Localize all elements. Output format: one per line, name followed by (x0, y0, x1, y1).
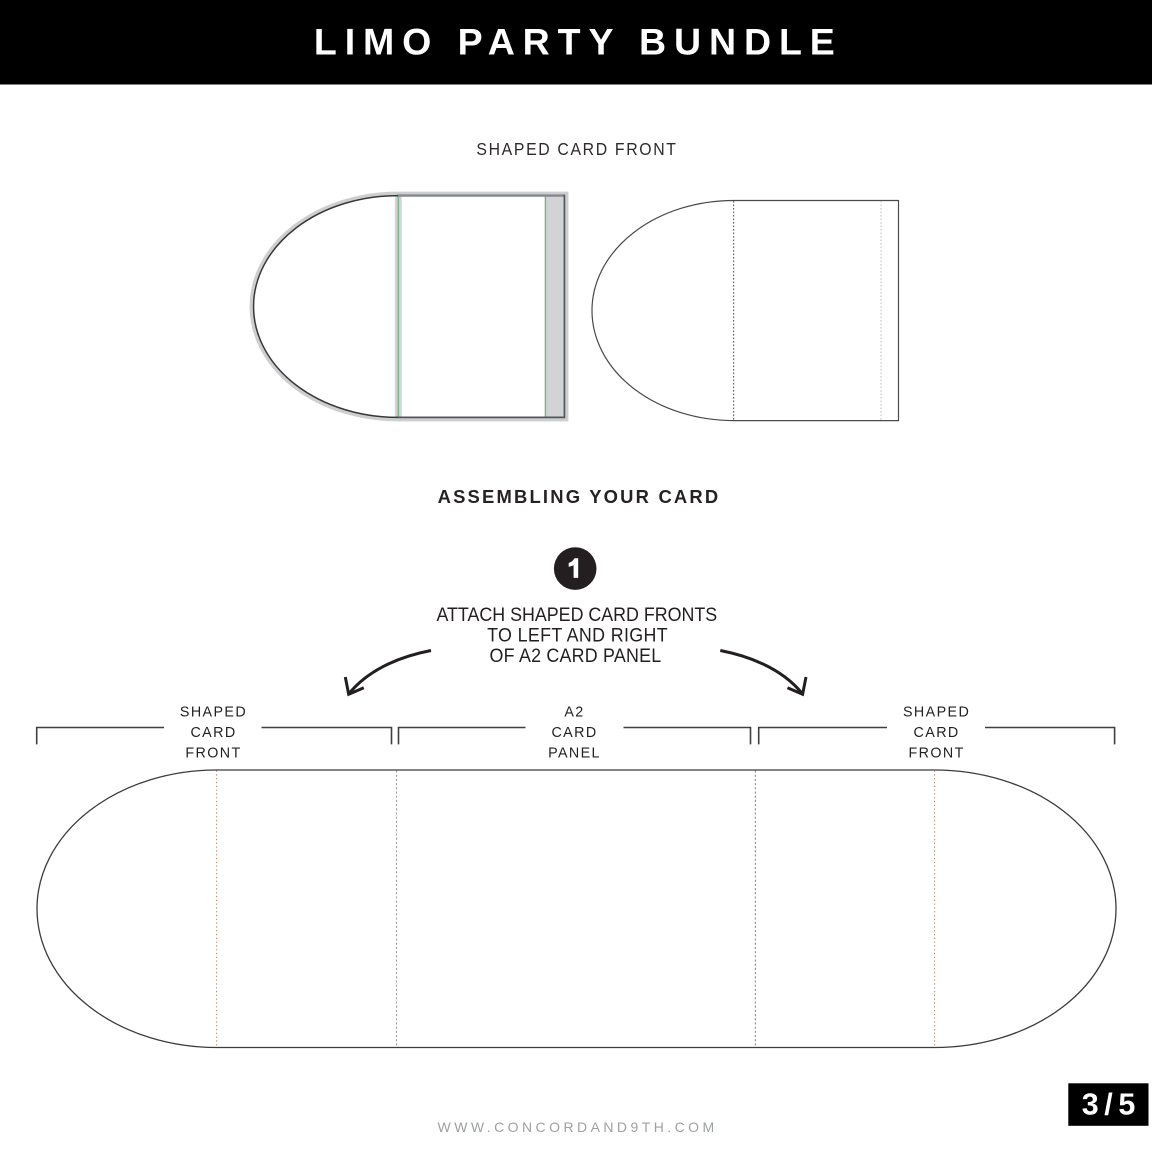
svg-text:OF A2 CARD PANEL: OF A2 CARD PANEL (490, 645, 662, 667)
svg-text:SHAPED: SHAPED (180, 705, 247, 721)
svg-text:FRONT: FRONT (185, 745, 241, 761)
svg-text:ATTACH SHAPED CARD FRONTS: ATTACH SHAPED CARD FRONTS (436, 603, 717, 625)
svg-text:ASSEMBLING YOUR CARD: ASSEMBLING YOUR CARD (438, 486, 721, 507)
svg-text:CARD: CARD (914, 725, 960, 741)
svg-text:CARD: CARD (190, 725, 236, 741)
svg-text:TO LEFT AND RIGHT: TO LEFT AND RIGHT (487, 624, 668, 646)
svg-text:PANEL: PANEL (548, 745, 601, 761)
svg-text:A2: A2 (564, 705, 584, 721)
svg-text:SHAPED CARD FRONT: SHAPED CARD FRONT (476, 139, 677, 159)
svg-text:3/5: 3/5 (1082, 1087, 1141, 1121)
svg-text:SHAPED: SHAPED (903, 705, 970, 721)
svg-text:FRONT: FRONT (908, 745, 964, 761)
svg-text:CARD: CARD (551, 725, 597, 741)
svg-text:LIMO PARTY BUNDLE: LIMO PARTY BUNDLE (314, 21, 843, 63)
svg-text:WWW.CONCORDAND9TH.COM: WWW.CONCORDAND9TH.COM (438, 1119, 718, 1135)
